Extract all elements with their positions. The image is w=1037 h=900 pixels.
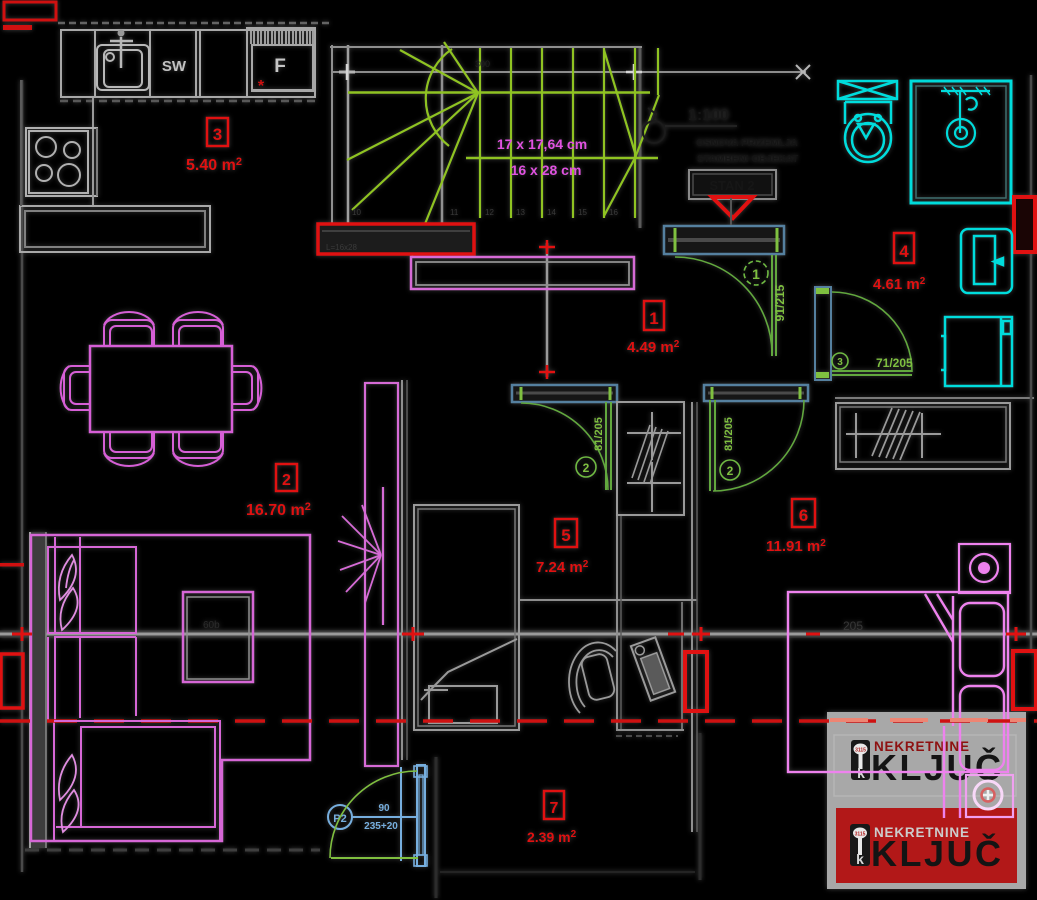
- svg-text:71/205: 71/205: [876, 356, 913, 370]
- svg-text:2: 2: [583, 461, 590, 475]
- svg-text:STAMBENI OBJEKAT: STAMBENI OBJEKAT: [697, 154, 798, 165]
- svg-text:2: 2: [282, 472, 291, 489]
- svg-text:13: 13: [516, 208, 525, 217]
- svg-text:15: 15: [578, 208, 587, 217]
- svg-text:16 x 28 cm: 16 x 28 cm: [511, 162, 582, 178]
- svg-text:7: 7: [550, 800, 559, 817]
- svg-text:60b: 60b: [203, 620, 220, 631]
- svg-text:4.61 m2: 4.61 m2: [873, 276, 926, 293]
- svg-text:235+20: 235+20: [364, 821, 398, 832]
- svg-text:11: 11: [450, 208, 459, 217]
- svg-text:17 x 17,64 cm: 17 x 17,64 cm: [497, 136, 587, 152]
- svg-text:2: 2: [727, 464, 734, 478]
- svg-text:81/205: 81/205: [723, 417, 735, 451]
- svg-text:KLJUČ: KLJUČ: [871, 832, 1004, 874]
- svg-text:STAN 2: STAN 2: [709, 178, 754, 193]
- svg-text:6: 6: [799, 506, 808, 525]
- svg-text:14: 14: [547, 208, 556, 217]
- svg-text:3115: 3115: [855, 832, 866, 838]
- svg-text:5: 5: [561, 526, 570, 545]
- svg-text:81/205: 81/205: [593, 417, 605, 451]
- svg-text:7.24 m2: 7.24 m2: [536, 559, 589, 576]
- svg-text:12: 12: [485, 208, 494, 217]
- svg-text:300: 300: [475, 59, 490, 69]
- svg-text:1: 1: [649, 309, 658, 328]
- svg-text:16: 16: [609, 208, 618, 217]
- svg-text:SW: SW: [162, 58, 187, 75]
- svg-text:F: F: [274, 56, 286, 77]
- svg-text:3: 3: [837, 357, 843, 368]
- svg-text:1:100: 1:100: [688, 107, 729, 124]
- svg-text:4.49 m2: 4.49 m2: [627, 339, 680, 356]
- svg-text:OSNOVA PRIZEMLJA: OSNOVA PRIZEMLJA: [696, 138, 798, 149]
- svg-text:11.91 m2: 11.91 m2: [766, 538, 826, 555]
- svg-text:205: 205: [843, 619, 863, 633]
- svg-text:4: 4: [899, 242, 909, 261]
- svg-text:16.70 m2: 16.70 m2: [246, 501, 311, 519]
- svg-text:2.39 m2: 2.39 m2: [527, 829, 577, 845]
- svg-text:5.40 m2: 5.40 m2: [186, 156, 242, 174]
- svg-text:1: 1: [752, 266, 760, 282]
- svg-text:90: 90: [378, 803, 390, 814]
- svg-text:10: 10: [352, 208, 361, 217]
- svg-text:*: *: [258, 78, 265, 95]
- svg-text:3115: 3115: [855, 748, 866, 754]
- svg-text:k: k: [856, 851, 864, 867]
- svg-text:3: 3: [213, 125, 222, 144]
- svg-text:91/215: 91/215: [773, 284, 787, 321]
- svg-text:L=16x28: L=16x28: [326, 243, 357, 252]
